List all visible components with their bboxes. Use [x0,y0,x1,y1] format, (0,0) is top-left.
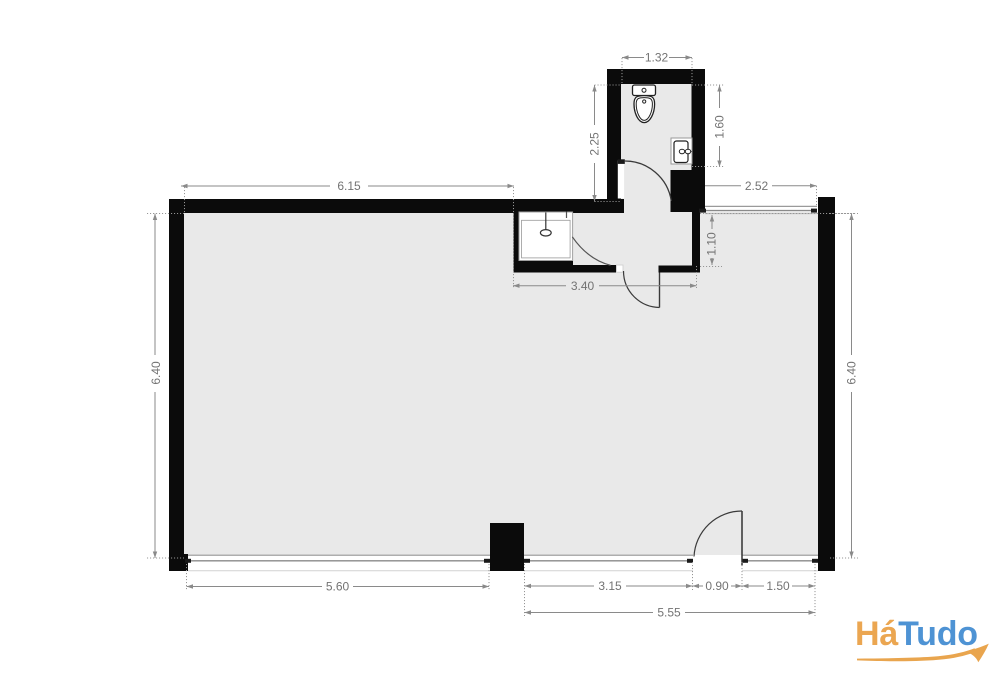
svg-text:2.25: 2.25 [588,132,602,156]
svg-text:1.32: 1.32 [645,51,669,65]
svg-text:6.40: 6.40 [845,361,859,385]
svg-text:2.52: 2.52 [745,179,769,193]
svg-text:1.60: 1.60 [713,115,727,139]
svg-text:5.55: 5.55 [657,606,681,620]
svg-text:3.15: 3.15 [598,579,622,593]
svg-text:6.40: 6.40 [149,361,163,385]
svg-text:1.10: 1.10 [704,232,718,256]
svg-text:3.40: 3.40 [571,279,595,293]
svg-text:6.15: 6.15 [337,179,361,193]
svg-text:HáTudo: HáTudo [855,615,978,653]
svg-text:0.90: 0.90 [705,579,729,593]
svg-text:1.50: 1.50 [766,579,790,593]
svg-text:5.60: 5.60 [326,580,350,594]
